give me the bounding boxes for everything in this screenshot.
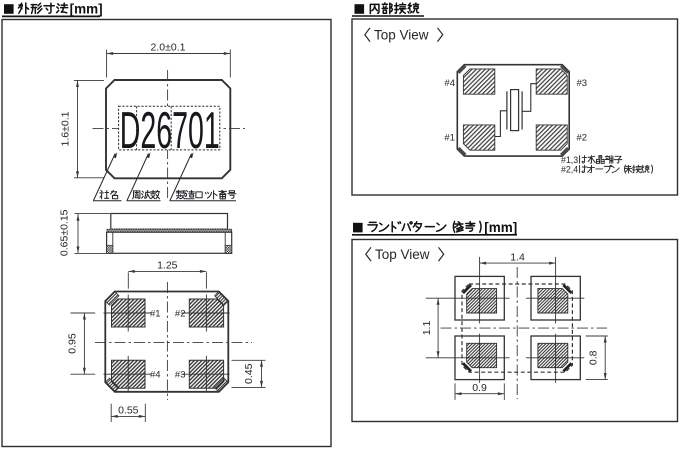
svg-text:#4: #4 [150,370,161,381]
svg-text:0.65±0.15: 0.65±0.15 [59,209,71,256]
svg-text:Top View: Top View [375,247,430,262]
svg-text:0.8: 0.8 [587,350,599,365]
svg-text:#2: #2 [577,133,588,144]
svg-text:#3: #3 [577,78,588,89]
svg-text:0.95: 0.95 [67,333,79,354]
svg-text:0.45: 0.45 [243,363,255,384]
svg-text:#4: #4 [444,78,455,89]
svg-text:[mm]: [mm] [70,2,103,17]
svg-text:1.25: 1.25 [157,260,178,272]
svg-text:0.9: 0.9 [472,382,487,394]
svg-text:#1,3: #1,3 [561,155,578,165]
svg-text:#2: #2 [175,308,186,319]
svg-text:1.4: 1.4 [510,251,525,263]
svg-text:0.55: 0.55 [118,404,139,416]
svg-text:[mm]: [mm] [484,220,517,235]
svg-text:2.0±0.1: 2.0±0.1 [151,42,186,54]
svg-text:#3: #3 [175,370,186,381]
svg-text:Top View: Top View [374,27,429,42]
svg-text:1.6±0.1: 1.6±0.1 [59,111,71,146]
svg-text:#2,4: #2,4 [561,165,578,175]
svg-text:#1: #1 [150,308,161,319]
svg-text:D26701: D26701 [120,101,220,159]
svg-text:#1: #1 [444,133,455,144]
svg-text:1.1: 1.1 [421,321,433,336]
